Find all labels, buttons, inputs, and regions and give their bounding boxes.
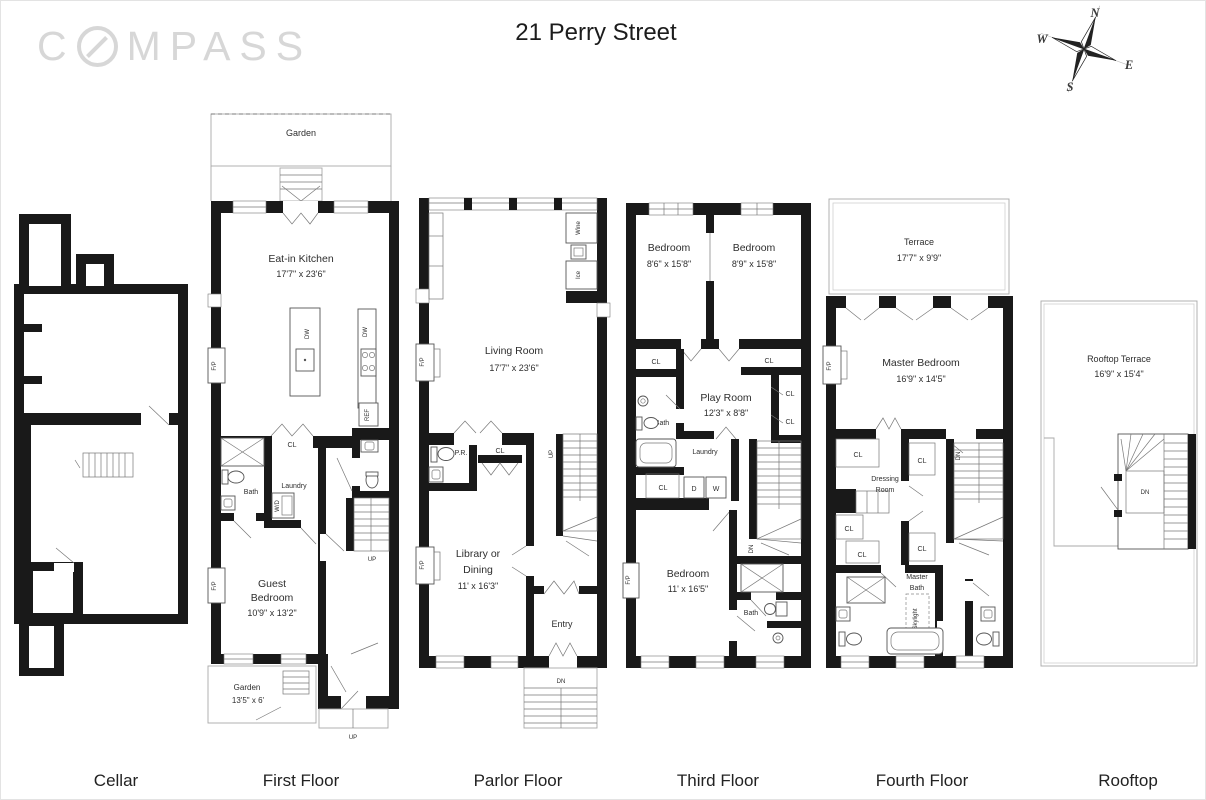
parlor-powder-room: P.R. (429, 447, 467, 482)
floor-caption-rooftop: Rooftop (1098, 771, 1158, 791)
master-bath-label2: Bath (910, 585, 925, 592)
laundry-label: Laundry (281, 483, 307, 490)
kitchen-island: DW (290, 308, 320, 396)
library-label: Library or (456, 548, 501, 560)
guest-bedroom-dims: 10'9" x 13'2" (247, 608, 296, 618)
garden-label: Garden (286, 128, 316, 138)
closet-label: CL (918, 546, 927, 553)
parlor-floor-plan: Wine Ice F/P Living Room 17'7" x 23'6" P… (414, 191, 619, 761)
master-bath: Master Bath Skylight (836, 574, 999, 654)
closet-label: CL (918, 458, 927, 465)
fp-label: F/P (212, 361, 218, 370)
living-room-fireplace-icon: F/P (416, 344, 440, 381)
pr-label: P.R. (455, 450, 468, 457)
bath-label: Bath (244, 489, 259, 496)
fp-label: F/P (626, 575, 632, 584)
laundry-label: Laundry (692, 449, 718, 456)
guest-bedroom: F/P Guest Bedroom 10'9" x 13'2" (208, 568, 297, 618)
library-fireplace-icon: F/P (416, 547, 440, 584)
bedroom1-dims: 8'6" x 15'8" (647, 259, 691, 269)
third-stairs-icon: DN (749, 439, 801, 555)
guest-bedroom-label2: Bedroom (251, 592, 294, 604)
first-laundry: Laundry W/D (272, 483, 307, 518)
master-bedroom-dims: 16'9" x 14'5" (896, 374, 945, 384)
kitchen-dims: 17'7" x 23'6" (276, 269, 325, 279)
floor-caption-fourth: Fourth Floor (876, 771, 969, 791)
closet-label: CL (786, 419, 795, 426)
first-garden-bottom: Garden 13'5" x 6' (208, 666, 316, 723)
floorplan-page: C MPASS 21 Perry Street N W E S (0, 0, 1206, 800)
roof-parapet-line (1044, 438, 1118, 546)
first-bath: Bath (221, 438, 264, 510)
fp-label: F/P (212, 581, 218, 590)
stoop-stairs-icon: DN (524, 668, 597, 728)
washer-label: W (713, 486, 720, 493)
floor-caption-parlor: Parlor Floor (474, 771, 563, 791)
washer-dryer: D W (684, 477, 726, 498)
floor-caption-cellar: Cellar (94, 771, 138, 791)
closet-label: CL (288, 442, 297, 449)
rooftop-terrace-dims: 16'9" x 15'4" (1094, 369, 1143, 379)
closet-label: CL (765, 358, 774, 365)
terrace-dims: 17'7" x 9'9" (897, 253, 941, 263)
up-label: UP (368, 557, 376, 563)
compass-rose: N W E S (1029, 3, 1149, 98)
dn-label: DN (557, 679, 566, 685)
dn-label: DN (749, 545, 755, 554)
third-floor-plan: Bedroom 8'6" x 15'8" Bedroom 8'9" x 15'8… (621, 191, 816, 671)
closet-label: CL (496, 448, 505, 455)
living-room-label: Living Room (485, 345, 544, 357)
compass-logo-o-icon (77, 26, 118, 67)
floor-caption-first: First Floor (263, 771, 340, 791)
library-label2: Dining (463, 564, 493, 576)
wd-label: W/D (275, 500, 281, 512)
terrace-label: Terrace (904, 237, 934, 247)
living-room-dims: 17'7" x 23'6" (489, 363, 538, 373)
fp-label: F/P (420, 560, 426, 569)
compass-w-label: W (1036, 32, 1048, 46)
first-garden-top: Garden (211, 114, 391, 201)
compass-n-label: N (1089, 6, 1100, 20)
master-fireplace-icon: F/P (823, 346, 847, 384)
stoop-landing: UP (319, 709, 388, 741)
rooftop-floor-plan: Rooftop Terrace 16'9" x 15'4" DN (1033, 291, 1205, 676)
third-bath2: Bath (741, 564, 787, 643)
closet-label: CL (854, 452, 863, 459)
up-label: UP (549, 450, 555, 458)
counter-dw-label: DW (363, 327, 369, 337)
fp-label: F/P (420, 357, 426, 366)
closet-label: CL (858, 552, 867, 559)
guest-bedroom-label: Guest (258, 578, 286, 590)
floor-caption-third: Third Floor (677, 771, 759, 791)
library-dims: 11' x 16'3" (458, 581, 499, 591)
third-bath: Bath (636, 396, 676, 467)
bedroom2-dims: 8'9" x 15'8" (732, 259, 776, 269)
fp-label: F/P (827, 361, 833, 370)
fourth-stairs-icon: DN (954, 443, 1003, 555)
first-floor-plan: Garden (206, 106, 406, 756)
rooftop-stair-bulkhead: DN (1101, 434, 1196, 549)
closet-label: CL (786, 391, 795, 398)
entry-label: Entry (551, 619, 573, 629)
kitchen-label: Eat-in Kitchen (268, 253, 334, 265)
compass-s-label: S (1067, 80, 1074, 94)
third-bedroom3: F/P Bedroom 11' x 16'5" (623, 563, 710, 598)
kitchen-counter: DW REF (358, 309, 378, 426)
dn-label: DN (1141, 490, 1150, 496)
playroom-label: Play Room (700, 392, 752, 404)
closet-label: CL (652, 359, 661, 366)
closet-label: CL (659, 485, 668, 492)
kitchen-fireplace-icon: F/P (208, 348, 225, 383)
dressing-room-label2: Room (876, 487, 895, 494)
closet-label: CL (845, 526, 854, 533)
first-powder-room (361, 440, 378, 488)
bedroom3-dims: 11' x 16'5" (668, 584, 709, 594)
fourth-floor-plan: Terrace 17'7" x 9'9" (821, 191, 1018, 671)
first-stairs-icon: UP (354, 498, 389, 563)
ref-label: REF (365, 409, 371, 421)
up-label: UP (349, 735, 357, 741)
dn-label: DN (956, 452, 962, 461)
master-bath-label: Master (906, 574, 928, 581)
parlor-builtins (429, 213, 443, 299)
skylight-label: Skylight (913, 608, 919, 629)
garden-label: Garden (234, 683, 261, 692)
logo-text-suffix: MPASS (127, 23, 313, 70)
master-bedroom-label: Master Bedroom (882, 357, 960, 369)
bath-label: Bath (744, 610, 759, 617)
compass-logo: C MPASS (37, 23, 312, 70)
page-title: 21 Perry Street (515, 19, 676, 47)
playroom-dims: 12'3" x 8'8" (704, 408, 748, 418)
wine-ice-closets: Wine Ice (566, 213, 597, 303)
garden-stairs-icon (280, 168, 322, 201)
bedroom1-label: Bedroom (648, 242, 691, 254)
wine-label: Wine (576, 221, 582, 235)
rooftop-terrace-label: Rooftop Terrace (1087, 354, 1151, 364)
compass-e-label: E (1124, 58, 1133, 72)
bedroom2-label: Bedroom (733, 242, 776, 254)
cellar-floor-plan (6, 206, 201, 696)
garden-dims: 13'5" x 6' (232, 696, 265, 705)
dressing-room-label: Dressing (871, 476, 899, 483)
logo-text-prefix: C (37, 23, 76, 70)
dryer-label: D (691, 486, 696, 493)
compass-star-icon (1029, 3, 1143, 98)
fourth-terrace: Terrace 17'7" x 9'9" (829, 199, 1009, 294)
ice-label: Ice (576, 270, 582, 279)
cellar-walls (14, 214, 188, 676)
island-dw-label: DW (305, 329, 311, 339)
bedroom3-label: Bedroom (667, 568, 710, 580)
third-walls (626, 203, 811, 668)
